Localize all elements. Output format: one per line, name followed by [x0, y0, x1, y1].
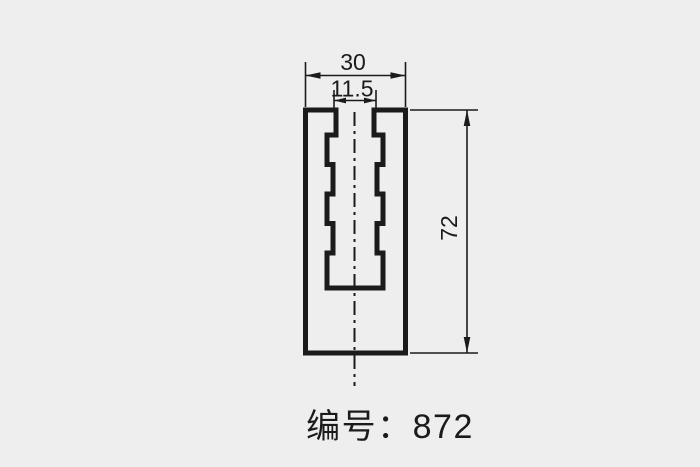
part-number-label: 编号：872	[306, 408, 474, 446]
arrow-down-icon	[464, 337, 471, 353]
dimension-label-outer-width: 30	[340, 49, 366, 75]
arrow-right-icon	[391, 72, 406, 79]
dimension-height: 72	[410, 110, 478, 353]
dimension-label-height: 72	[436, 215, 462, 241]
arrow-left-icon	[306, 72, 321, 79]
arrow-up-icon	[464, 110, 471, 126]
drawing-canvas: 30 11.5 72 编号：872	[0, 0, 700, 467]
technical-drawing: 30 11.5 72 编号：872	[0, 0, 700, 467]
dimension-slot-width: 11.5	[330, 76, 376, 109]
dimension-label-slot-width: 11.5	[330, 76, 373, 102]
